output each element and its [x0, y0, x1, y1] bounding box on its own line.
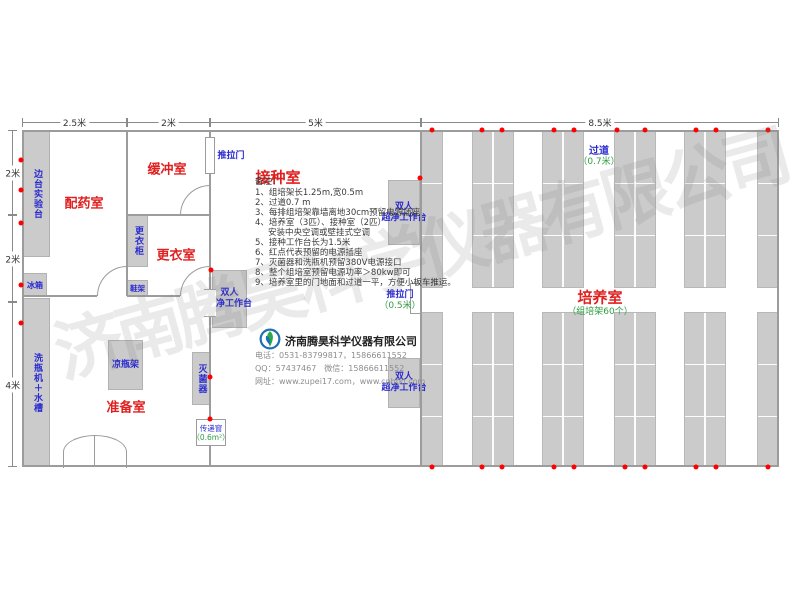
pass-window-label: 传递窗 — [200, 424, 223, 433]
wall — [22, 295, 97, 297]
dimension-left-2: 2米 — [12, 215, 13, 302]
power-outlet-dot — [572, 465, 577, 470]
power-outlet-dot — [430, 465, 435, 470]
company-phone: 电话：0531-83799817，15866611552 — [255, 350, 407, 361]
company-logo-icon — [259, 328, 281, 350]
power-outlet-dot — [430, 128, 435, 133]
company-website: 网址：www.zupei17.com，www.cnhtkj.com — [255, 376, 425, 387]
company-name: 济南腾昊科学仪器有限公司 — [285, 333, 417, 349]
power-outlet-dot — [208, 375, 213, 380]
dimension-label: 8.5米 — [585, 116, 614, 129]
power-outlet-dot — [19, 283, 24, 288]
power-outlet-dot — [208, 417, 213, 422]
power-outlet-dot — [766, 128, 771, 133]
note-line: 7、灭菌器和洗瓶机预留380V电源接口 — [255, 258, 425, 268]
door-label: 推拉门 — [379, 290, 420, 301]
dimension-label: 5米 — [305, 116, 326, 129]
dimension-label: 2米 — [158, 116, 179, 129]
sliding-door-top-label: 推拉门 — [217, 148, 244, 161]
dimension-top-4: 8.5米 — [421, 122, 779, 123]
sliding-door-top — [205, 137, 215, 174]
dimension-left-1: 2米 — [12, 130, 13, 215]
power-outlet-dot — [500, 465, 505, 470]
power-outlet-dot — [623, 465, 628, 470]
power-outlet-dot — [552, 465, 557, 470]
room-label-dispensing: 配药室 — [64, 193, 103, 212]
power-outlet-dot — [480, 465, 485, 470]
power-outlet-dot — [615, 128, 620, 133]
pass-window: 传递窗 （0.6m²） — [196, 419, 226, 446]
company-qq-wechat: QQ：57437467 微信：15866611552 — [255, 363, 404, 374]
room-label-changing: 更衣室 — [156, 245, 195, 264]
power-outlet-dot — [643, 128, 648, 133]
power-outlet-dot — [643, 465, 648, 470]
note-line: 8、整个组培室预留电源功率＞80kw即可 — [255, 268, 425, 278]
power-outlet-dot — [714, 128, 719, 133]
power-outlet-dot — [572, 128, 577, 133]
note-line: 1、组培架长1.25m,宽0.5m — [255, 188, 425, 198]
corridor-label: 过道 （0.7米） — [578, 146, 619, 168]
power-outlet-dot — [19, 188, 24, 193]
note-line: 3、每排组培架靠墙离地30cm预留电源插座 — [255, 208, 425, 218]
door-opening — [204, 289, 216, 317]
dimension-label: 4米 — [5, 377, 20, 392]
notes-title: 备注： — [255, 177, 425, 187]
power-outlet-dot — [19, 321, 24, 326]
corridor-size: （0.7米） — [578, 157, 619, 168]
note-line: 2、过道0.7 m — [255, 198, 425, 208]
sliding-door-right-label: 推拉门 （0.5米） — [379, 290, 420, 312]
power-outlet-dot — [500, 128, 505, 133]
power-outlet-dot — [694, 128, 699, 133]
dimension-top-1: 2.5米 — [22, 122, 127, 123]
power-outlet-dot — [480, 128, 485, 133]
dimension-top-3: 5米 — [210, 122, 421, 123]
note-line: 安装中央空调或壁挂式空调 — [255, 228, 425, 238]
wall — [127, 295, 180, 297]
door-size-label: （0.5米） — [379, 301, 420, 312]
room-label-preparation: 准备室 — [106, 397, 145, 416]
note-line: 4、培养室（3匹）、接种室（2匹） — [255, 218, 425, 228]
power-outlet-dot — [209, 268, 214, 273]
corridor-name: 过道 — [578, 146, 619, 157]
note-line: 6、红点代表预留的电源插座 — [255, 248, 425, 258]
notes-list: 1、组培架长1.25m,宽0.5m2、过道0.7 m3、每排组培架靠墙离地30c… — [255, 188, 425, 288]
dimension-top-2: 2米 — [127, 122, 210, 123]
pass-window-size: （0.6m²） — [192, 433, 229, 442]
dimension-label: 2米 — [5, 251, 20, 266]
dimension-label: 2米 — [5, 165, 20, 180]
dimension-left-3: 4米 — [12, 302, 13, 467]
double-door-arc — [63, 435, 127, 468]
power-outlet-dot — [19, 221, 24, 226]
power-outlet-dot — [766, 465, 771, 470]
room-label-buffer: 缓冲室 — [147, 159, 186, 178]
dimension-label: 2.5米 — [60, 116, 89, 129]
notes-block: 备注： 1、组培架长1.25m,宽0.5m2、过道0.7 m3、每排组培架靠墙离… — [255, 177, 425, 288]
room-label-culture-sub: （组培架60个） — [567, 304, 632, 317]
note-line: 9、培养室里的门地面和过道一平，方便小板车推运。 — [255, 278, 425, 288]
floorplan-canvas: 济南腾昊科学仪器有限公司 2.5米 2米 5米 8.5米 2米 2米 4米 — [0, 0, 800, 600]
power-outlet-dot — [694, 465, 699, 470]
power-outlet-dot — [714, 465, 719, 470]
power-outlet-dot — [418, 176, 423, 181]
note-line: 5、接种工作台长为1.5米 — [255, 238, 425, 248]
power-outlet-dot — [19, 158, 24, 163]
power-outlet-dot — [552, 128, 557, 133]
